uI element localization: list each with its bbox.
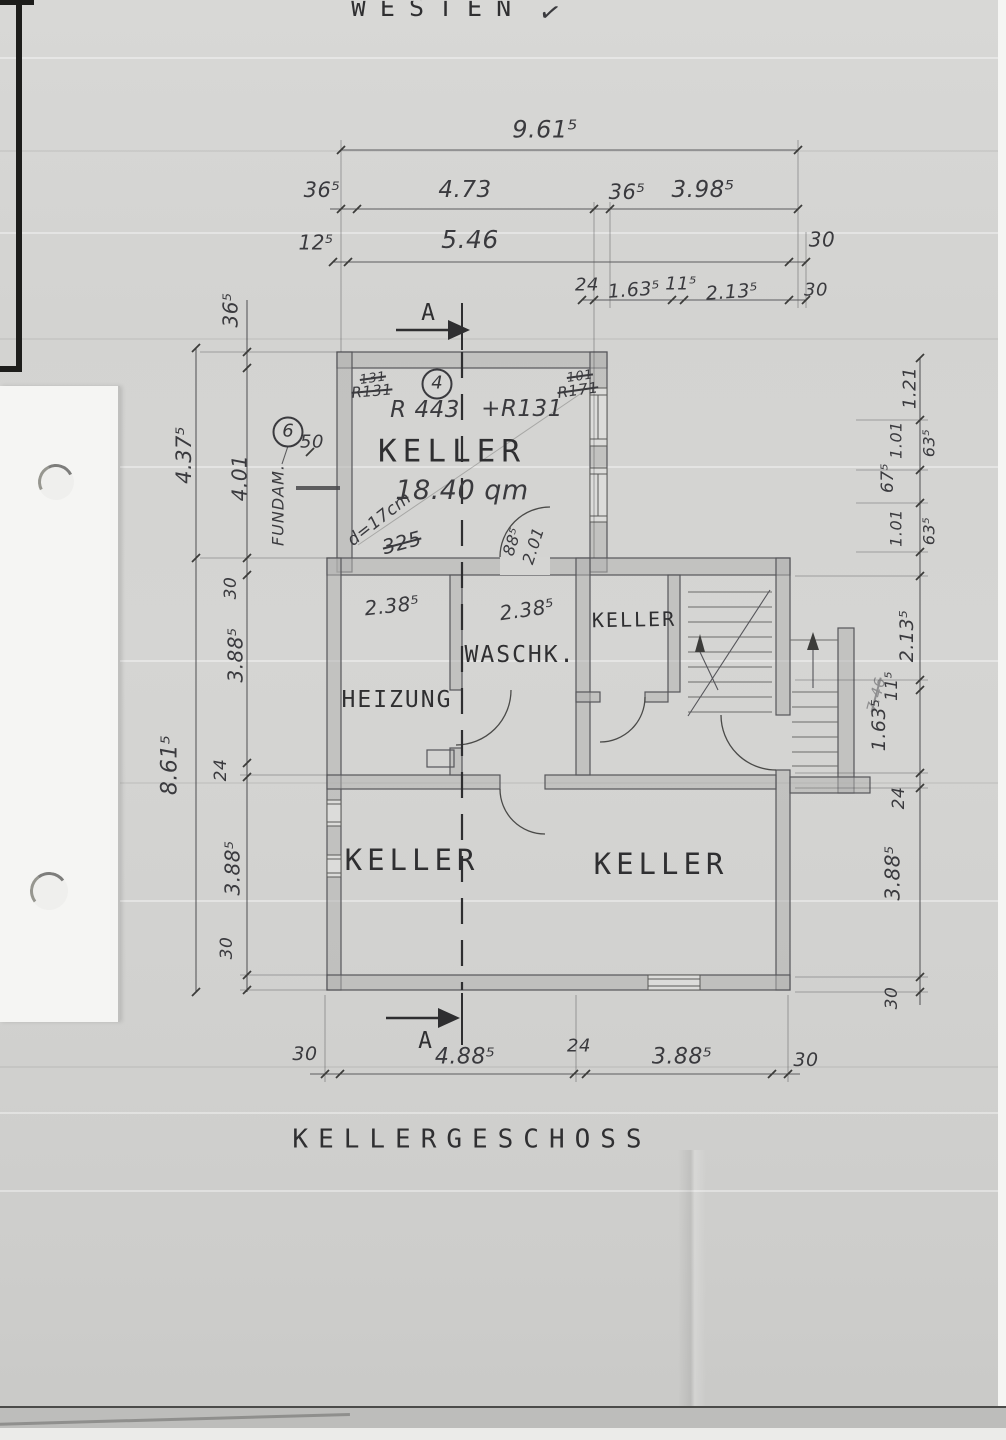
plan-linework <box>0 0 1006 1440</box>
dim-left-outer1: 4.37⁵ <box>173 426 195 484</box>
reference-circle-6: 6 <box>273 417 304 448</box>
room-label-keller-se: KELLER <box>594 849 729 879</box>
dim-top-y4: 2.13⁵ <box>705 281 759 305</box>
dim-left-t6: 30 <box>219 937 237 960</box>
door-arc-keller-stair <box>600 697 645 742</box>
stair-direction-arrow-icon <box>807 632 819 650</box>
dim-bottom-b3: 24 <box>567 1038 591 1057</box>
room-area-keller-main: 18.40 qm <box>395 477 528 505</box>
interior-stair <box>688 590 772 716</box>
dim-left-outer2: 8.61⁵ <box>158 735 181 795</box>
dim-top-w4: 3.98⁵ <box>672 178 735 202</box>
door-arc-hall-entry <box>721 715 776 770</box>
room-label-waschk: WASCHK. <box>465 643 576 667</box>
drawing-title: KELLERGESCHOSS <box>292 1126 651 1153</box>
window-top-room-right-2 <box>590 468 607 522</box>
section-mark-top: A <box>421 301 435 325</box>
dim-right-r2a: 1.01 <box>889 421 906 459</box>
dim-right-r10: 30 <box>884 987 902 1010</box>
dim-right-r2b: 63⁵ <box>922 429 939 457</box>
dim-left-t1: 36⁵ <box>221 293 242 328</box>
scan-edge-line <box>16 0 22 372</box>
paper-edge-right <box>998 0 1006 1440</box>
dim-right-r3: 67⁵ <box>880 463 898 493</box>
scan-edge-mark <box>0 366 17 372</box>
window-left-wall-2 <box>327 855 341 877</box>
dim-bottom-b2: 4.88⁵ <box>435 1045 495 1068</box>
dim-top-x2: 5.46 <box>441 227 499 253</box>
dim-bottom-b5: 30 <box>793 1051 818 1071</box>
section-arrow-bottom-icon <box>386 1008 460 1028</box>
page-bottom-margin <box>0 1428 1006 1440</box>
fundament-label: FUNDAM. <box>271 464 288 546</box>
dim-heizung-width: 2.38⁵ <box>364 593 421 620</box>
dim-top-x3: 30 <box>809 230 835 251</box>
dim-right-r1: 1.21 <box>902 367 921 409</box>
room-label-keller-sw: KELLER <box>345 845 480 875</box>
room-ref-b: +R131 <box>481 397 563 421</box>
dim-left-t4: 24 <box>213 759 231 782</box>
dim-left-t2: 30 <box>223 577 241 600</box>
room-ref-a: R 443 <box>390 398 460 422</box>
room-label-keller-stair: KELLER <box>592 609 677 631</box>
dim-right-r9: 3.88⁵ <box>883 845 904 900</box>
dim-top-y2: 1.63⁵ <box>607 279 661 303</box>
door-arc-waschk <box>456 690 511 745</box>
dim-right-r5: 2.13⁵ <box>898 610 918 662</box>
exterior-stair <box>790 632 838 766</box>
room-label-keller-main: KELLER <box>378 436 526 469</box>
window-left-wall-1 <box>327 800 341 826</box>
dim-right-r4b: 63⁵ <box>922 517 939 545</box>
dim-bottom-b4: 3.88⁵ <box>652 1045 712 1068</box>
section-mark-bottom: A <box>418 1029 432 1053</box>
dim-left-t5: 3.88⁵ <box>223 840 244 895</box>
dim-top-y3: 11⁵ <box>665 276 697 295</box>
door-arc-keller-sw <box>500 789 545 834</box>
dim-left-t3: 3.88⁵ <box>226 627 247 682</box>
dim-top-y1: 24 <box>575 277 599 296</box>
dim-right-r8: 24 <box>891 787 909 810</box>
dim-right-r4a: 1.01 <box>889 509 906 547</box>
dim-left-inner1: 4.01 <box>230 455 251 502</box>
dim-top-y5: 30 <box>804 282 828 301</box>
dim-top-w2: 4.73 <box>438 178 491 202</box>
compass-label: WESTEN <box>351 0 525 21</box>
scanned-basement-floor-plan: WESTEN ✓ 9.61⁵ 36⁵ 4.73 36⁵ 3.98⁵ 12⁵ 5.… <box>0 0 1006 1440</box>
room-label-heizung: HEIZUNG <box>342 688 453 712</box>
room-number: R131 <box>351 382 393 401</box>
dim-top-w3: 36⁵ <box>609 181 646 203</box>
dim-top-overall: 9.61⁵ <box>512 117 578 142</box>
dim-fifty: 50 <box>300 434 324 453</box>
dim-bottom-b1: 30 <box>292 1045 317 1065</box>
dim-top-x1: 12⁵ <box>299 233 334 254</box>
window-bottom-wall <box>648 975 700 990</box>
reference-circle-4: 4 <box>422 369 453 400</box>
dim-top-w1: 36⁵ <box>304 179 341 201</box>
